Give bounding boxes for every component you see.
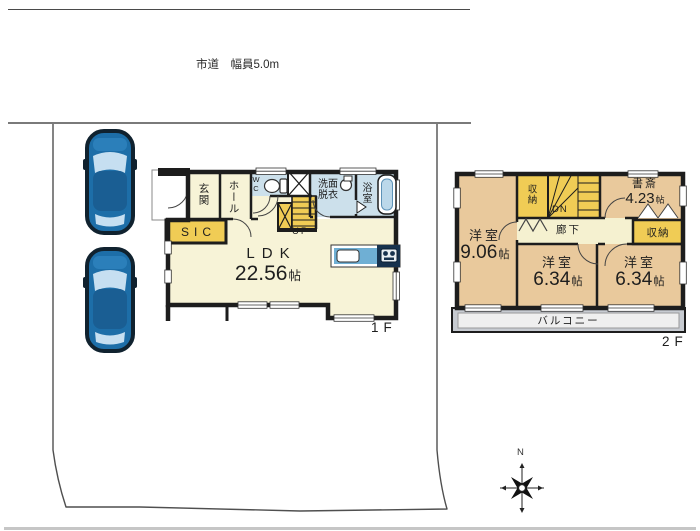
bedroom-right-name: 洋室: [598, 256, 682, 270]
label-sic: SIC: [166, 220, 226, 243]
label-balcony: バルコニー: [452, 310, 685, 330]
ldk-name: LDK: [218, 246, 318, 262]
hatch-box-icon: [288, 171, 310, 196]
bedroom-center-size-unit: 帖: [571, 276, 582, 288]
bathtub-icon: [378, 175, 396, 214]
label-bedroom-center: 洋室 6.34帖: [518, 256, 598, 290]
study-size-unit: 帖: [656, 195, 665, 205]
bottom-edge-shadow: [4, 527, 696, 530]
study-size: 4.23帖: [604, 191, 686, 207]
label-corridor: 廊下: [556, 222, 581, 237]
label-closet-top: 収納: [526, 184, 536, 205]
label-bedroom-left: 洋室 9.06帖: [450, 229, 520, 263]
label-dn: DN: [552, 204, 568, 215]
car-icon: [83, 126, 137, 238]
bedroom-left-name: 洋室: [450, 229, 520, 243]
bedroom-right-size-value: 6.34: [615, 269, 652, 290]
toilet-icon: [265, 179, 288, 193]
bedroom-right-size: 6.34帖: [598, 270, 682, 290]
label-hall: ホール: [228, 180, 239, 215]
floorplan-page: 市道 幅員5.0m: [0, 0, 700, 531]
label-ldk: LDK 22.56帖: [218, 246, 318, 285]
label-bedroom-right: 洋室 6.34帖: [598, 256, 682, 290]
porch: [152, 168, 190, 220]
label-wc: WC: [252, 175, 260, 193]
ldk-size-unit: 帖: [288, 269, 301, 283]
bedroom-left-size-unit: 帖: [498, 249, 509, 261]
bedroom-center-size: 6.34帖: [518, 270, 598, 290]
bedroom-center-name: 洋室: [518, 256, 598, 270]
label-bath: 浴室: [360, 182, 370, 204]
label-up: UP: [292, 226, 309, 237]
bedroom-left-size: 9.06帖: [450, 243, 520, 263]
label-closet-right: 収納: [633, 220, 683, 244]
label-washroom-line2: 脱衣: [311, 191, 345, 202]
floor2-label: 2F: [662, 334, 688, 349]
study-size-value: 4.23: [625, 190, 654, 207]
floor1-label: 1F: [371, 320, 397, 335]
bedroom-right-size-unit: 帖: [653, 276, 664, 288]
stove-icon: [381, 249, 397, 262]
bedroom-left-size-value: 9.06: [460, 242, 497, 263]
label-study: 書斎 4.23帖: [604, 179, 686, 206]
car-icon: [83, 244, 137, 356]
label-washroom: 洗面 脱衣: [311, 180, 345, 201]
compass-north-label: N: [517, 447, 524, 458]
floor-storage-icon: [278, 203, 292, 230]
kitchen-counter-icon: [331, 245, 400, 267]
compass-rose-icon: [500, 458, 544, 518]
label-genkan: 玄関: [198, 183, 209, 206]
ldk-size-value: 22.56: [235, 262, 288, 285]
ldk-size: 22.56帖: [218, 263, 318, 285]
label-washroom-line1: 洗面: [311, 180, 345, 191]
bedroom-center-size-value: 6.34: [533, 269, 570, 290]
